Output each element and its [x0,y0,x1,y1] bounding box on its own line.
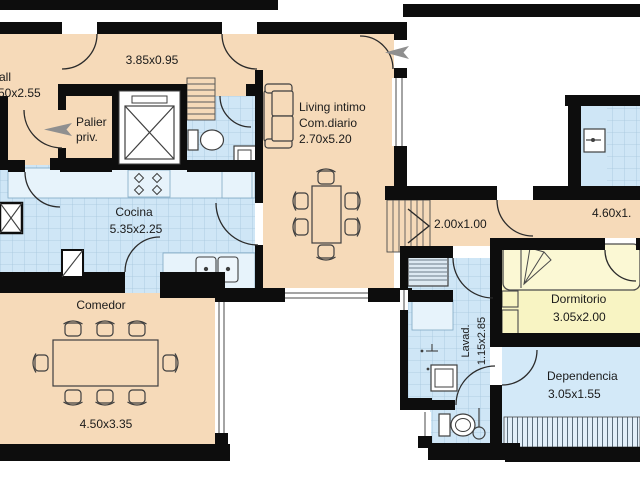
wall [636,238,640,250]
label-comedor-name: Comedor [76,298,125,312]
wall [568,106,581,186]
floor-plan-canvas: 3.85x0.95 all 50x2.55 Palier priv. Livin… [0,0,640,480]
wall [255,245,263,288]
wall [533,186,640,200]
label-hall-name: all [0,70,11,84]
wall [187,160,255,172]
window [215,302,228,433]
wall [62,277,83,293]
wall [58,96,66,110]
label-cocina-name: Cocina [115,205,153,219]
wall [60,160,112,172]
wall [0,22,62,34]
wall [0,272,62,293]
label-lavadero-dims: 1.15x2.85 [476,317,488,365]
label-dependencia-dims: 3.05x1.55 [548,387,601,401]
bed-icon [503,244,640,290]
wall [408,290,453,302]
label-cocina-dims: 5.35x2.25 [110,222,163,236]
living-table [312,186,341,243]
air-shaft-icon [0,203,22,233]
wardrobe-icon [502,310,518,336]
floor-plan: 3.85x0.95 all 50x2.55 Palier priv. Livin… [0,0,640,480]
label-living-1: Living intimo [299,100,366,114]
sofa-icon [264,84,293,148]
bath-right-door [584,129,605,152]
wall [400,398,432,410]
wall [394,22,407,40]
fridge-icon [222,170,252,198]
wall [257,22,397,34]
label-dormitorio-dims: 3.05x2.00 [553,310,606,324]
stairs-top-icon [187,78,215,120]
wall [160,272,225,298]
wall [490,238,605,250]
laundry-sink-icon [427,365,457,391]
label-comedor-dims: 4.50x3.35 [80,417,133,431]
wall [83,272,125,293]
label-dormitorio-name: Dormitorio [551,292,607,306]
wall [385,186,497,200]
wall [490,333,640,347]
room-bath-right-tiles [607,106,640,186]
laundry-counter [412,300,453,330]
label-corridor-top-dims: 3.85x0.95 [126,53,179,67]
elevator-icon [112,84,187,170]
label-living-2: Com.diario [299,116,357,130]
toilet-icon-small-bath [439,414,475,436]
window [400,290,408,310]
wall [490,385,502,450]
wall [400,310,408,402]
label-corridor-right-dims: 4.60x1. [592,206,631,220]
wall [0,96,8,170]
label-hall-dims: 50x2.55 [0,86,41,100]
wall [97,22,222,34]
label-palier-2: priv. [76,130,98,144]
wall [428,443,520,460]
toilet-icon-top-bath [188,130,224,150]
wall [225,288,285,302]
wall [565,95,640,106]
label-living-dims: 2.70x5.20 [299,132,352,146]
wall [432,400,455,410]
wall [0,0,278,10]
wall [493,246,500,258]
wall [8,160,25,172]
balcony-hatch [504,417,640,447]
label-passage-dims: 2.00x1.00 [434,217,487,231]
window [392,78,407,146]
wall [255,70,263,203]
label-dependencia-name: Dependencia [547,369,618,383]
wall [400,246,408,290]
stairs-lower-icon [387,200,430,252]
label-palier-1: Palier [76,115,107,129]
duct-icon [62,250,83,277]
window [419,412,431,436]
wall [0,444,230,461]
wall [408,246,453,258]
wall [394,68,407,78]
wall [403,4,640,17]
nightstand-icon [502,291,518,307]
stove-icon [128,170,170,197]
window [285,290,368,302]
wall [505,447,640,462]
dining-table [53,340,158,386]
label-lavadero-name: Lavad. [460,324,472,357]
washer-icon [408,255,448,286]
